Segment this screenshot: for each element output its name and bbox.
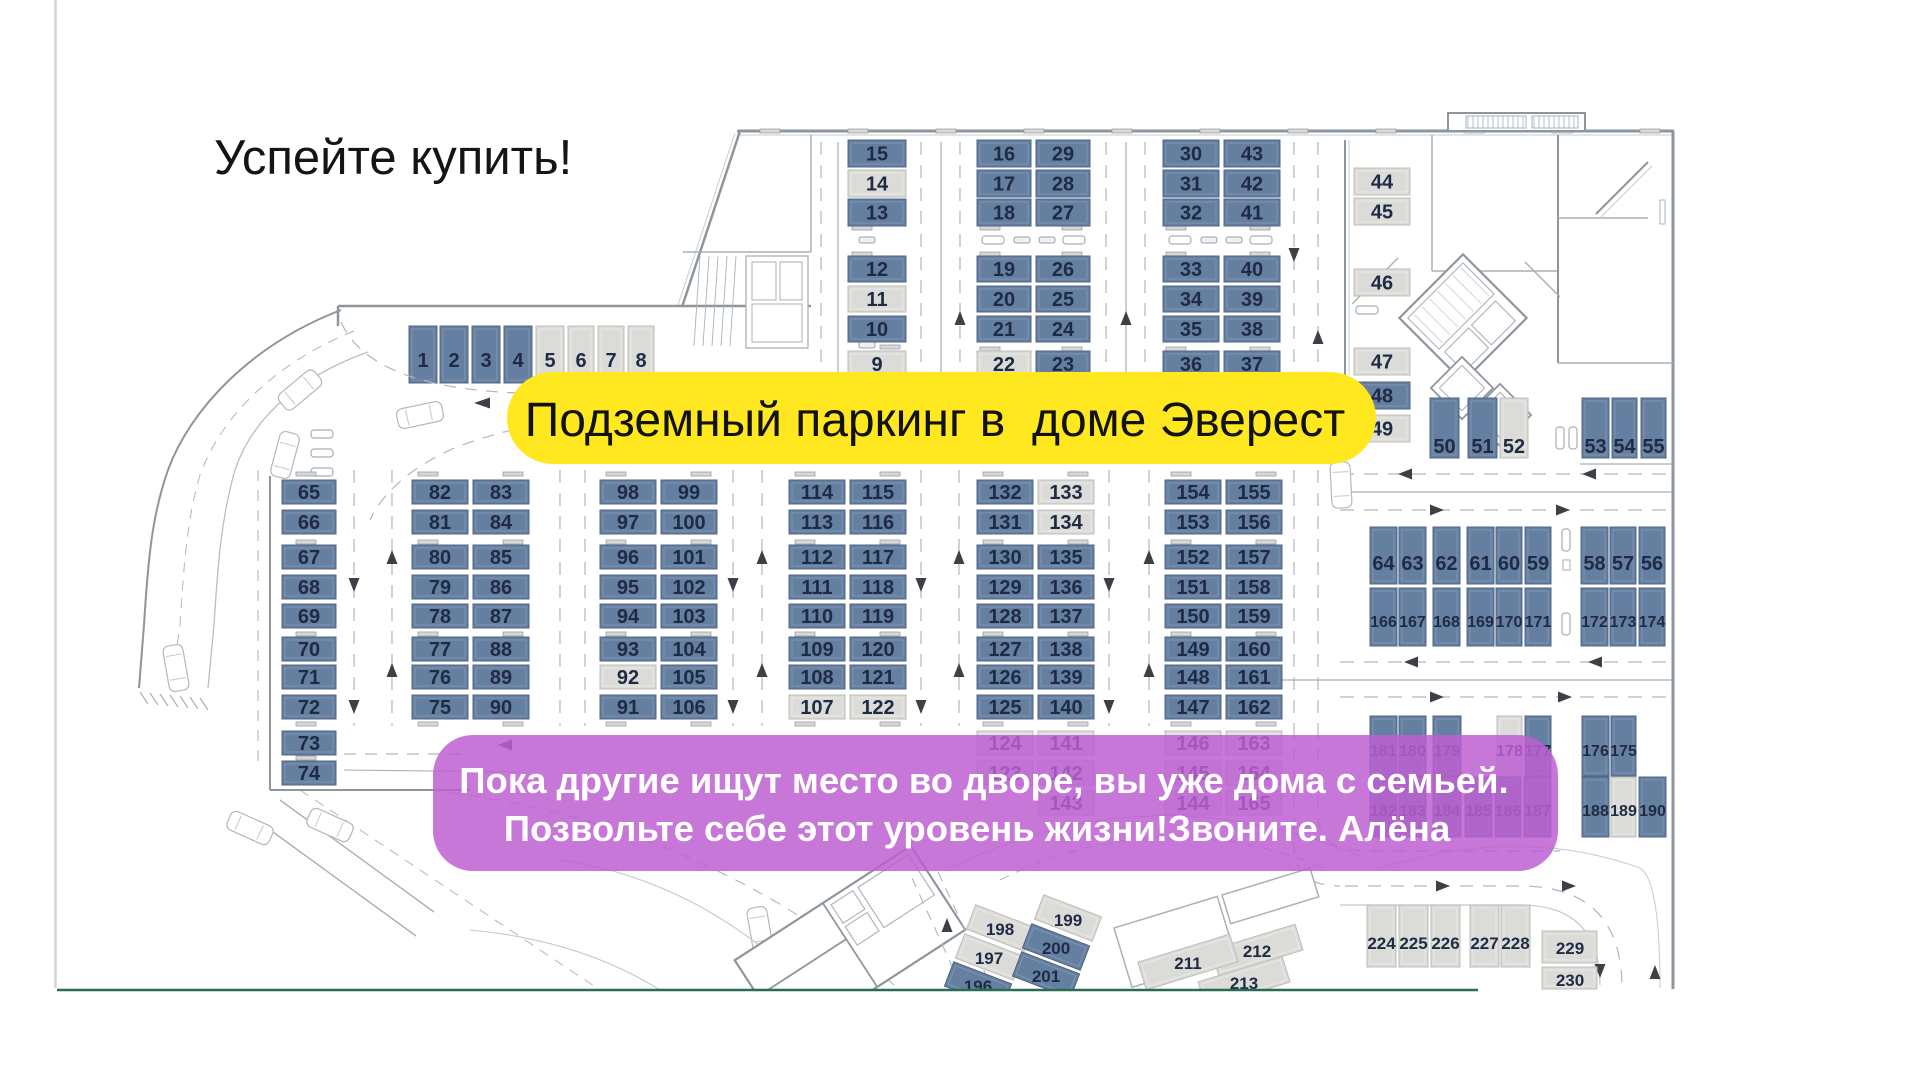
svg-text:114: 114 (801, 482, 834, 504)
svg-text:18: 18 (993, 203, 1015, 225)
svg-text:68: 68 (298, 577, 320, 599)
svg-text:39: 39 (1241, 289, 1263, 311)
svg-text:21: 21 (993, 319, 1015, 341)
svg-text:188: 188 (1582, 803, 1609, 820)
svg-text:128: 128 (988, 606, 1021, 628)
svg-text:108: 108 (800, 667, 833, 689)
svg-text:10: 10 (866, 319, 888, 341)
svg-text:45: 45 (1371, 202, 1393, 224)
svg-text:Подземный паркинг в доме Эвер: Подземный паркинг в доме Эверест (525, 394, 1345, 447)
svg-text:96: 96 (617, 547, 639, 569)
svg-text:44: 44 (1371, 172, 1394, 194)
svg-text:137: 137 (1049, 606, 1082, 628)
svg-text:71: 71 (298, 667, 320, 689)
svg-text:65: 65 (298, 482, 320, 504)
svg-text:166: 166 (1370, 614, 1397, 631)
svg-text:76: 76 (429, 667, 451, 689)
svg-text:61: 61 (1469, 553, 1491, 575)
svg-text:50: 50 (1433, 436, 1455, 458)
svg-text:172: 172 (1581, 614, 1608, 631)
svg-text:26: 26 (1052, 259, 1074, 281)
svg-text:42: 42 (1241, 174, 1263, 196)
svg-text:81: 81 (429, 512, 451, 534)
svg-text:14: 14 (866, 174, 889, 196)
svg-text:27: 27 (1052, 203, 1074, 225)
svg-text:102: 102 (672, 577, 705, 599)
svg-text:3: 3 (480, 350, 491, 372)
svg-text:55: 55 (1642, 436, 1664, 458)
svg-text:24: 24 (1052, 319, 1075, 341)
svg-text:136: 136 (1049, 577, 1082, 599)
svg-text:170: 170 (1496, 614, 1523, 631)
svg-text:66: 66 (298, 512, 320, 534)
svg-text:19: 19 (993, 259, 1015, 281)
svg-text:119: 119 (862, 606, 894, 628)
svg-text:54: 54 (1613, 436, 1636, 458)
svg-text:148: 148 (1176, 667, 1209, 689)
svg-text:85: 85 (490, 547, 512, 569)
svg-text:7: 7 (605, 350, 616, 372)
svg-text:200: 200 (1042, 939, 1070, 958)
svg-text:91: 91 (617, 697, 639, 719)
svg-text:118: 118 (862, 577, 894, 599)
svg-text:173: 173 (1610, 614, 1637, 631)
svg-text:135: 135 (1049, 547, 1082, 569)
svg-text:82: 82 (429, 482, 451, 504)
svg-text:56: 56 (1641, 553, 1663, 575)
svg-text:73: 73 (298, 733, 320, 755)
svg-text:2: 2 (448, 350, 459, 372)
svg-text:171: 171 (1525, 614, 1552, 631)
svg-text:16: 16 (993, 144, 1015, 166)
svg-text:152: 152 (1176, 547, 1209, 569)
svg-text:57: 57 (1612, 553, 1634, 575)
svg-text:17: 17 (993, 174, 1015, 196)
svg-text:62: 62 (1435, 553, 1457, 575)
svg-text:161: 161 (1237, 667, 1270, 689)
svg-text:139: 139 (1049, 667, 1082, 689)
svg-text:111: 111 (801, 577, 832, 599)
svg-text:93: 93 (617, 639, 639, 661)
svg-text:168: 168 (1433, 614, 1460, 631)
svg-text:29: 29 (1052, 144, 1074, 166)
svg-text:129: 129 (988, 577, 1021, 599)
svg-text:169: 169 (1467, 614, 1494, 631)
svg-text:92: 92 (617, 667, 639, 689)
svg-text:79: 79 (429, 577, 451, 599)
svg-text:38: 38 (1241, 319, 1263, 341)
svg-text:117: 117 (862, 547, 894, 569)
svg-text:225: 225 (1399, 934, 1427, 953)
svg-text:198: 198 (986, 920, 1014, 939)
svg-text:138: 138 (1049, 639, 1082, 661)
svg-text:199: 199 (1054, 911, 1082, 930)
svg-text:13: 13 (866, 203, 888, 225)
svg-text:4: 4 (512, 350, 524, 372)
svg-text:125: 125 (988, 697, 1021, 719)
svg-text:88: 88 (490, 639, 512, 661)
svg-text:46: 46 (1371, 273, 1393, 295)
svg-text:12: 12 (866, 259, 888, 281)
svg-text:113: 113 (801, 512, 833, 534)
svg-text:226: 226 (1431, 934, 1459, 953)
svg-text:74: 74 (298, 763, 321, 785)
svg-text:28: 28 (1052, 174, 1074, 196)
svg-text:86: 86 (490, 577, 512, 599)
svg-text:87: 87 (490, 606, 512, 628)
svg-text:112: 112 (801, 547, 833, 569)
svg-text:33: 33 (1180, 259, 1202, 281)
svg-text:133: 133 (1049, 482, 1082, 504)
svg-text:153: 153 (1176, 512, 1209, 534)
svg-text:Позвольте себе этот уровень жи: Позвольте себе этот уровень жизни!Звонит… (504, 808, 1451, 849)
svg-text:101: 101 (672, 547, 705, 569)
svg-text:6: 6 (575, 350, 586, 372)
svg-text:147: 147 (1176, 697, 1209, 719)
svg-text:32: 32 (1180, 203, 1202, 225)
svg-text:156: 156 (1237, 512, 1270, 534)
svg-text:64: 64 (1372, 553, 1395, 575)
svg-text:130: 130 (988, 547, 1021, 569)
svg-text:174: 174 (1639, 614, 1666, 631)
svg-text:51: 51 (1471, 436, 1493, 458)
svg-text:41: 41 (1241, 203, 1263, 225)
svg-text:90: 90 (490, 697, 512, 719)
svg-text:176: 176 (1582, 743, 1609, 760)
svg-text:8: 8 (635, 350, 646, 372)
svg-text:53: 53 (1584, 436, 1606, 458)
svg-text:52: 52 (1503, 436, 1525, 458)
svg-text:159: 159 (1237, 606, 1270, 628)
svg-text:228: 228 (1501, 934, 1529, 953)
svg-text:120: 120 (861, 639, 894, 661)
svg-text:212: 212 (1243, 942, 1271, 961)
svg-text:48: 48 (1371, 386, 1393, 408)
svg-text:70: 70 (298, 639, 320, 661)
svg-text:211: 211 (1174, 954, 1201, 973)
svg-text:60: 60 (1498, 553, 1520, 575)
svg-text:20: 20 (993, 289, 1015, 311)
svg-text:59: 59 (1527, 553, 1549, 575)
svg-text:Пока другие ищут место во двор: Пока другие ищут место во дворе, вы уже … (459, 760, 1508, 801)
svg-text:100: 100 (672, 512, 705, 534)
svg-text:Успейте купить!: Успейте купить! (214, 131, 572, 185)
svg-text:34: 34 (1180, 289, 1203, 311)
svg-text:67: 67 (298, 547, 320, 569)
svg-text:58: 58 (1583, 553, 1605, 575)
svg-text:190: 190 (1639, 803, 1666, 820)
svg-text:224: 224 (1367, 934, 1396, 953)
svg-text:69: 69 (298, 606, 320, 628)
svg-text:154: 154 (1176, 482, 1210, 504)
svg-text:98: 98 (617, 482, 639, 504)
svg-text:77: 77 (429, 639, 451, 661)
svg-text:109: 109 (800, 639, 833, 661)
svg-text:63: 63 (1401, 553, 1423, 575)
svg-text:95: 95 (617, 577, 639, 599)
svg-text:75: 75 (429, 697, 451, 719)
svg-text:127: 127 (988, 639, 1021, 661)
svg-text:105: 105 (672, 667, 705, 689)
svg-text:122: 122 (861, 697, 894, 719)
svg-text:110: 110 (801, 606, 833, 628)
svg-text:104: 104 (672, 639, 706, 661)
svg-text:30: 30 (1180, 144, 1202, 166)
svg-text:35: 35 (1180, 319, 1202, 341)
svg-text:116: 116 (862, 512, 894, 534)
svg-text:155: 155 (1237, 482, 1270, 504)
svg-text:40: 40 (1241, 259, 1263, 281)
svg-text:72: 72 (298, 697, 320, 719)
svg-text:189: 189 (1610, 803, 1637, 820)
svg-text:160: 160 (1237, 639, 1270, 661)
svg-text:149: 149 (1176, 639, 1209, 661)
svg-text:43: 43 (1241, 144, 1263, 166)
svg-text:94: 94 (617, 606, 640, 628)
svg-text:158: 158 (1237, 577, 1270, 599)
svg-text:5: 5 (544, 350, 555, 372)
svg-text:47: 47 (1371, 352, 1393, 374)
svg-text:78: 78 (429, 606, 451, 628)
svg-text:115: 115 (862, 482, 894, 504)
svg-text:132: 132 (988, 482, 1021, 504)
svg-text:121: 121 (861, 667, 894, 689)
svg-text:197: 197 (975, 949, 1003, 968)
svg-text:1: 1 (417, 350, 428, 372)
svg-text:103: 103 (672, 606, 705, 628)
svg-text:107: 107 (800, 697, 833, 719)
svg-text:229: 229 (1556, 939, 1584, 958)
svg-text:140: 140 (1049, 697, 1082, 719)
svg-text:131: 131 (988, 512, 1021, 534)
svg-text:167: 167 (1399, 614, 1426, 631)
svg-text:11: 11 (866, 289, 887, 311)
svg-text:84: 84 (490, 512, 513, 534)
svg-text:25: 25 (1052, 289, 1074, 311)
svg-text:175: 175 (1610, 743, 1637, 760)
svg-text:230: 230 (1556, 971, 1584, 990)
svg-text:157: 157 (1237, 547, 1270, 569)
svg-text:83: 83 (490, 482, 512, 504)
svg-text:150: 150 (1176, 606, 1209, 628)
svg-text:106: 106 (672, 697, 705, 719)
svg-text:227: 227 (1470, 934, 1498, 953)
svg-text:151: 151 (1176, 577, 1209, 599)
svg-text:97: 97 (617, 512, 639, 534)
svg-text:31: 31 (1180, 174, 1202, 196)
svg-text:201: 201 (1032, 967, 1060, 986)
svg-text:89: 89 (490, 667, 512, 689)
svg-text:99: 99 (678, 482, 700, 504)
svg-text:126: 126 (988, 667, 1021, 689)
svg-text:15: 15 (866, 144, 888, 166)
svg-text:162: 162 (1237, 697, 1270, 719)
svg-text:80: 80 (429, 547, 451, 569)
svg-text:134: 134 (1049, 512, 1083, 534)
